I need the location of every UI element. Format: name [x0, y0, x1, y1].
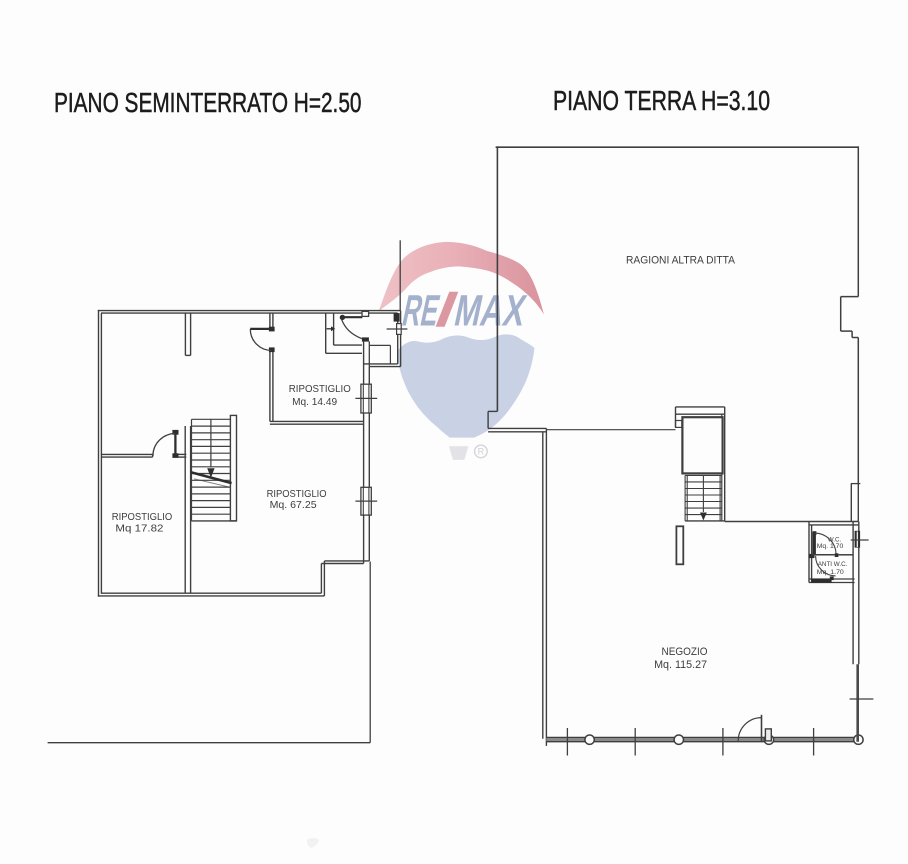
svg-text:Mq. 67.25: Mq. 67.25	[270, 499, 317, 511]
svg-text:RAGIONI ALTRA DITTA: RAGIONI ALTRA DITTA	[626, 254, 736, 266]
svg-text:Mq. 115.27: Mq. 115.27	[654, 659, 707, 671]
svg-text:RIPOSTIGLIO: RIPOSTIGLIO	[289, 383, 351, 395]
svg-text:R: R	[478, 447, 485, 457]
svg-text:RIPOSTIGLIO: RIPOSTIGLIO	[112, 511, 173, 523]
svg-text:Mq. 1.70: Mq. 1.70	[817, 569, 844, 576]
svg-text:NEGOZIO: NEGOZIO	[662, 646, 708, 658]
svg-text:PIANO SEMINTERRATO H=2.50: PIANO SEMINTERRATO H=2.50	[54, 87, 362, 118]
svg-text:MAX: MAX	[450, 287, 530, 335]
svg-text:Mq. 14.49: Mq. 14.49	[292, 396, 337, 408]
svg-text:ANTI W.C.: ANTI W.C.	[818, 561, 848, 568]
svg-text:Mq. 1.70: Mq. 1.70	[817, 543, 844, 550]
svg-text:PIANO TERRA H=3.10: PIANO TERRA H=3.10	[553, 85, 770, 116]
svg-text:Mq 17.82: Mq 17.82	[115, 523, 163, 535]
